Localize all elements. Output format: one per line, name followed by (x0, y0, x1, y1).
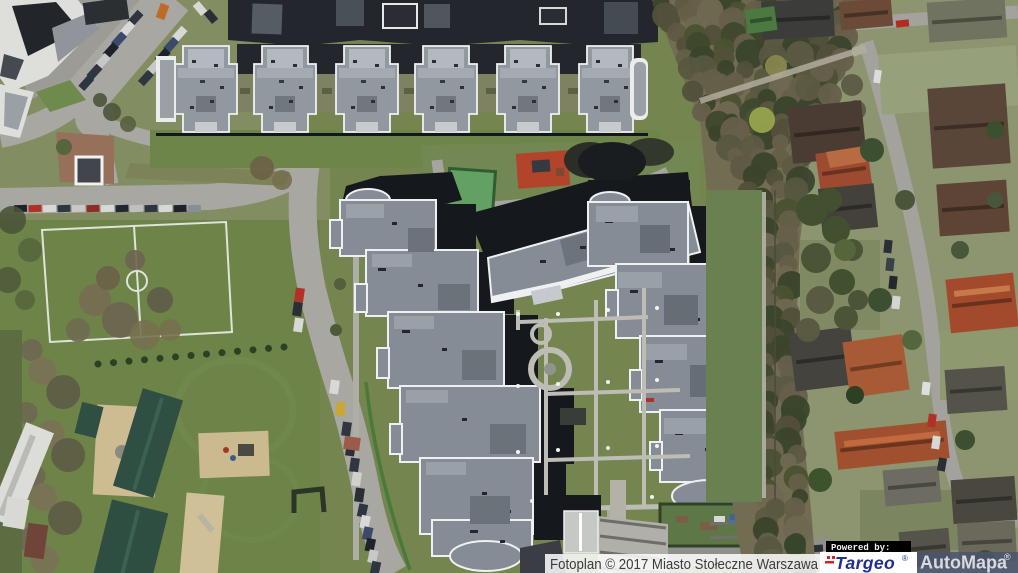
svg-text:®: ® (902, 554, 908, 563)
svg-text:Targeo: Targeo (835, 553, 895, 573)
svg-text:Fotoplan © 2017 Miasto Stołecz: Fotoplan © 2017 Miasto Stołeczne Warszaw… (550, 556, 819, 573)
svg-text:AutoMapa: AutoMapa (920, 553, 1008, 573)
svg-text:Powered by:: Powered by: (831, 543, 890, 553)
svg-text:®: ® (1004, 552, 1011, 562)
